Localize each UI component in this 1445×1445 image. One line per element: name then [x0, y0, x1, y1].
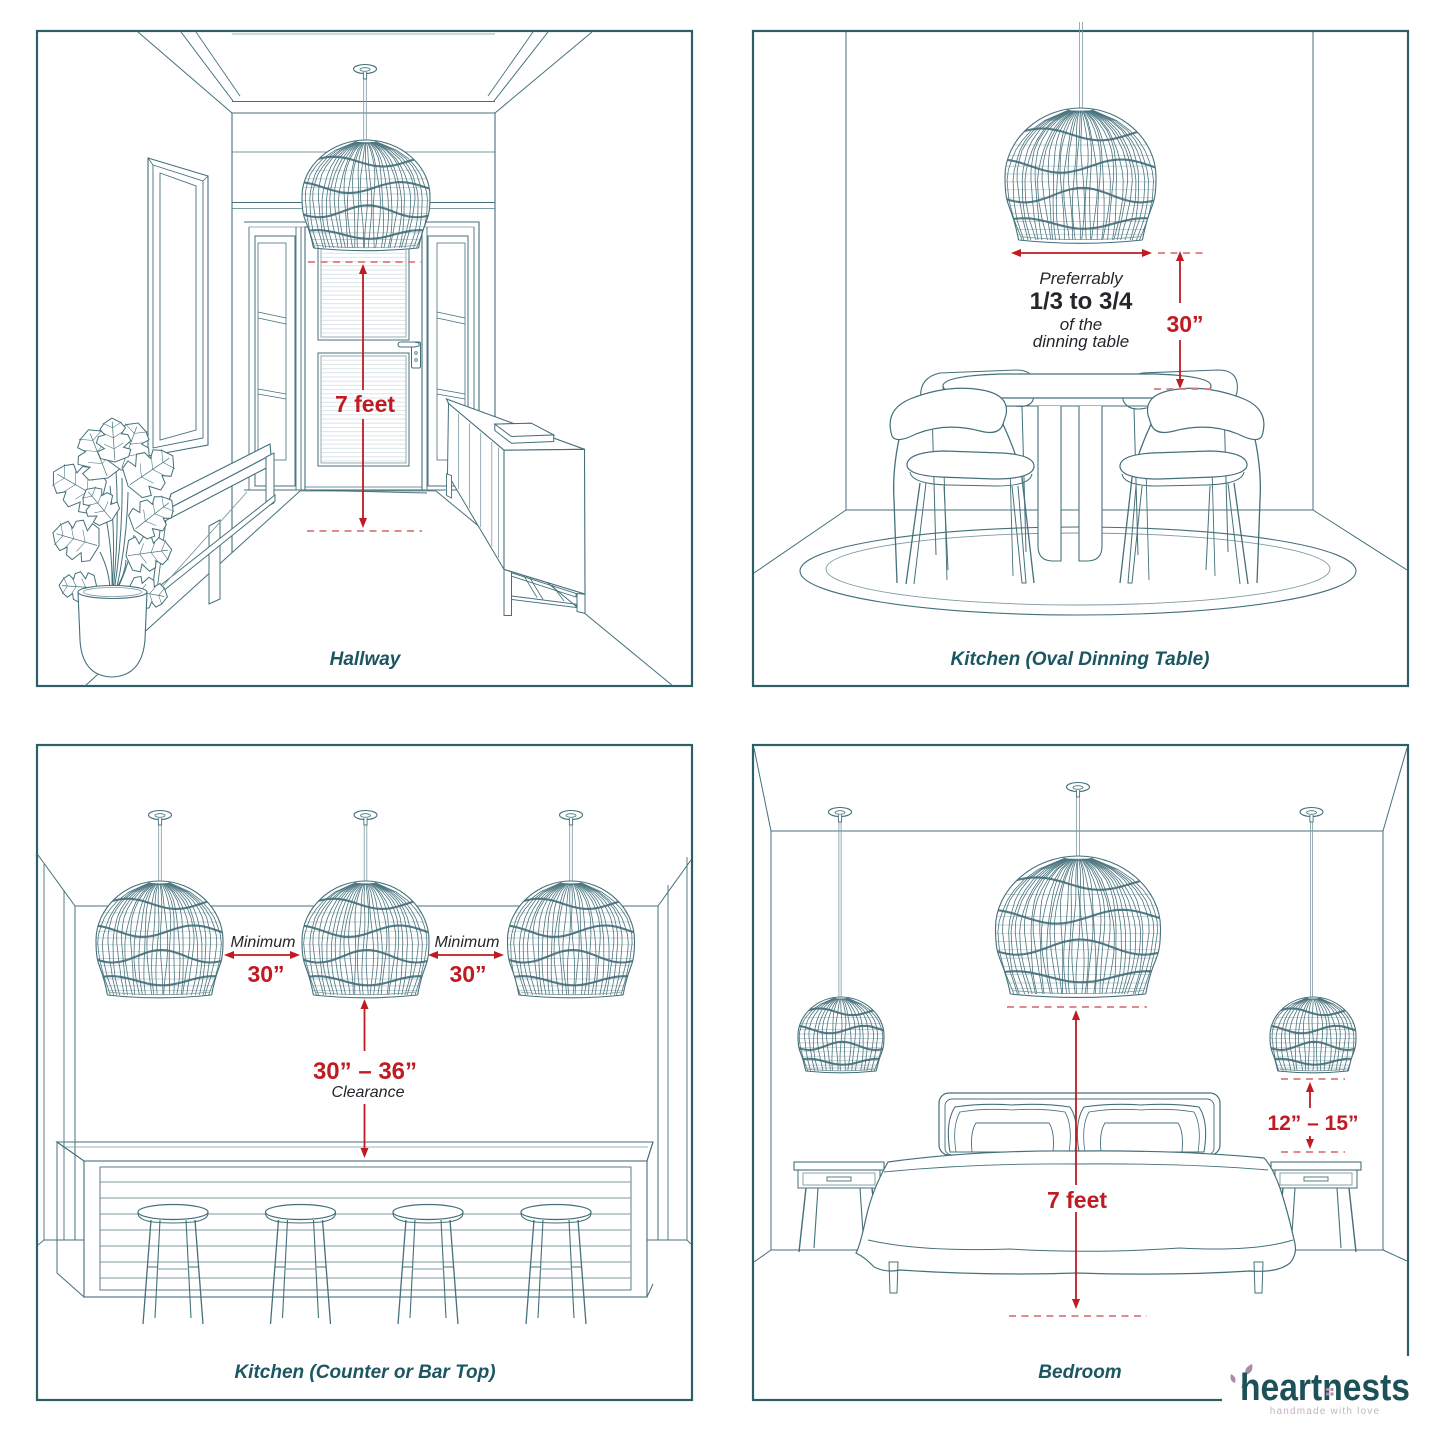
svg-text:Kitchen (Counter or Bar Top): Kitchen (Counter or Bar Top) [234, 1362, 495, 1383]
svg-text:Minimum: Minimum [231, 934, 296, 951]
svg-text:handmade with love: handmade with love [1270, 1406, 1381, 1417]
svg-text:30” – 36”: 30” – 36” [313, 1058, 417, 1085]
svg-text:Clearance: Clearance [332, 1084, 405, 1101]
svg-text:Preferrably: Preferrably [1039, 269, 1124, 288]
svg-text:dinning table: dinning table [1033, 332, 1129, 351]
svg-text:Kitchen (Oval Dinning Table): Kitchen (Oval Dinning Table) [951, 649, 1210, 670]
svg-text:Hallway: Hallway [330, 649, 402, 670]
svg-text:30”: 30” [247, 961, 284, 987]
svg-text:30”: 30” [1166, 311, 1203, 337]
svg-text:12” – 15”: 12” – 15” [1267, 1112, 1358, 1135]
svg-text:30”: 30” [449, 961, 486, 987]
svg-text:heartnests: heartnests [1240, 1367, 1410, 1409]
svg-text:7 feet: 7 feet [1047, 1187, 1107, 1213]
svg-text:1/3 to 3/4: 1/3 to 3/4 [1030, 288, 1133, 315]
svg-text:Bedroom: Bedroom [1038, 1362, 1122, 1383]
svg-text:7 feet: 7 feet [335, 391, 395, 417]
svg-text:Minimum: Minimum [435, 934, 500, 951]
